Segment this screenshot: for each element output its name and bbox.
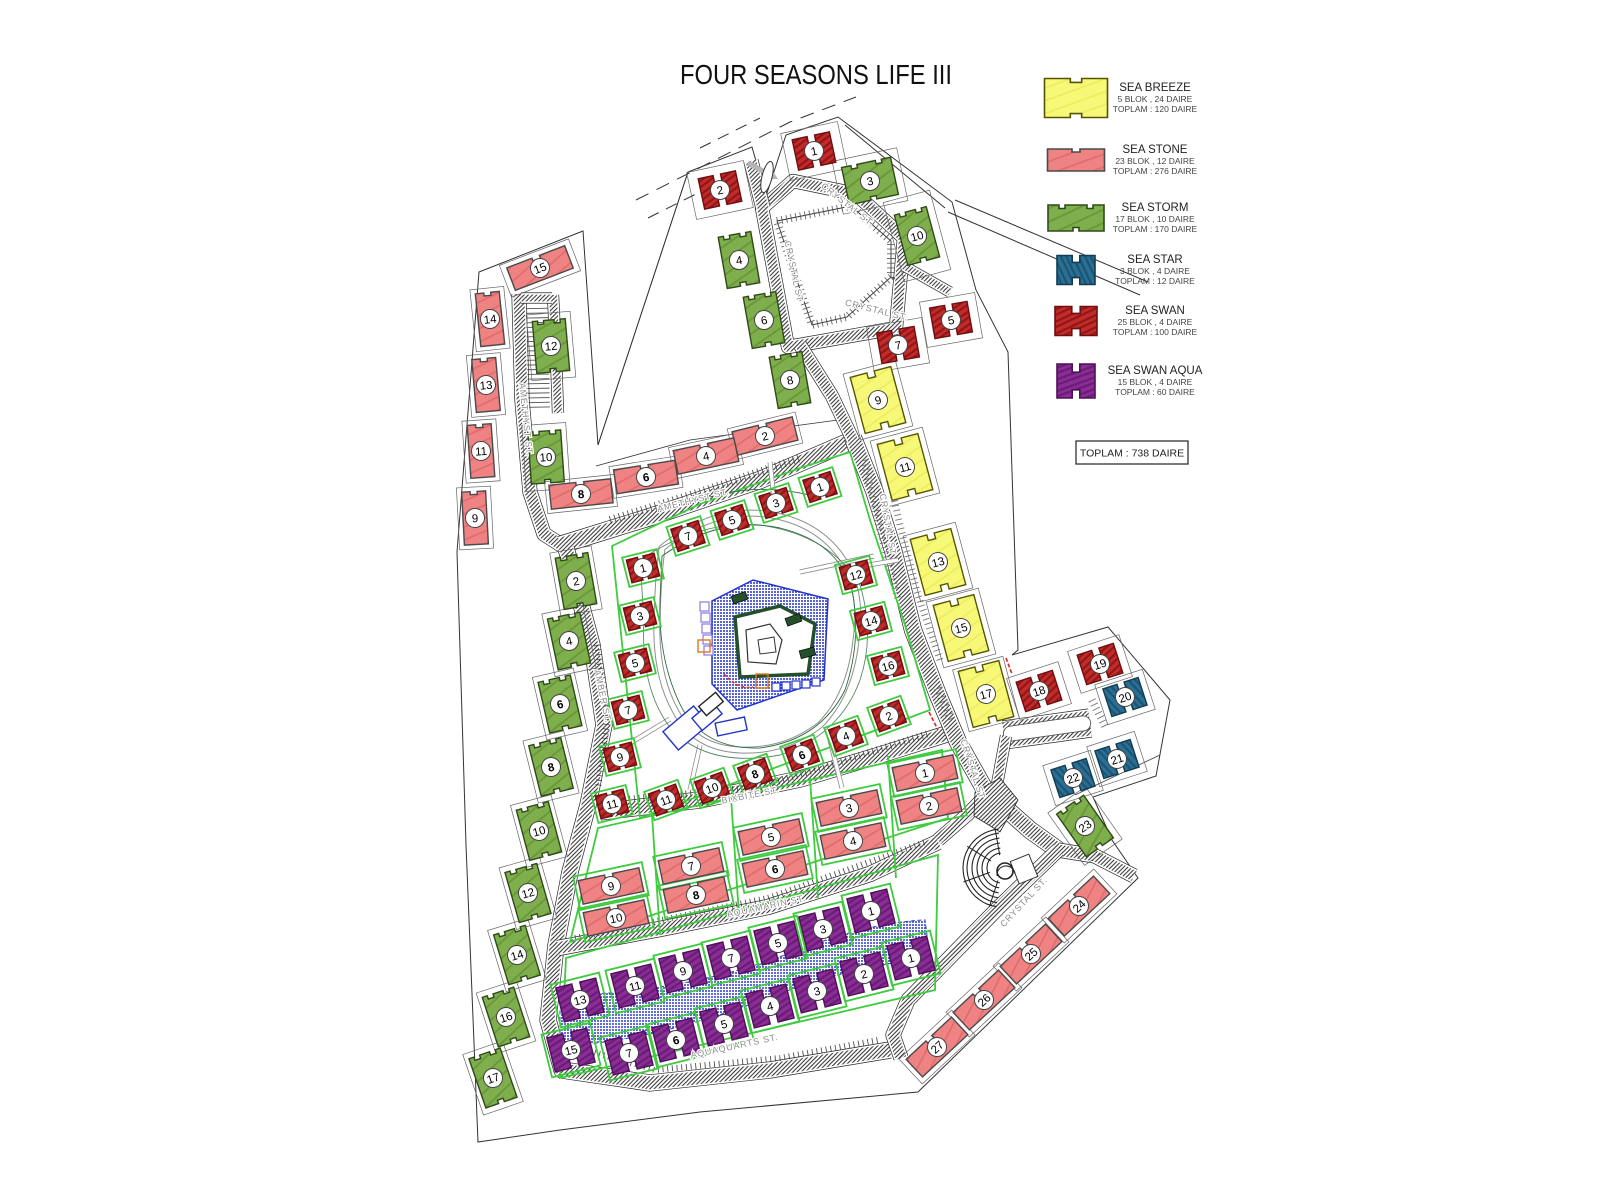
svg-text:15 BLOK , 4 DAIRE: 15 BLOK , 4 DAIRE (1118, 377, 1193, 387)
svg-text:3 BLOK , 4 DAIRE: 3 BLOK , 4 DAIRE (1120, 266, 1190, 276)
svg-text:11: 11 (475, 446, 488, 459)
svg-text:SEA STONE: SEA STONE (1123, 144, 1188, 156)
svg-text:SEA STAR: SEA STAR (1127, 254, 1182, 266)
svg-text:TOPLAM : 60 DAIRE: TOPLAM : 60 DAIRE (1115, 387, 1195, 397)
svg-text:23 BLOK , 12 DAIRE: 23 BLOK , 12 DAIRE (1115, 156, 1195, 166)
svg-text:TOPLAM : 12 DAIRE: TOPLAM : 12 DAIRE (1115, 276, 1195, 286)
svg-text:17 BLOK , 10 DAIRE: 17 BLOK , 10 DAIRE (1115, 214, 1195, 224)
svg-text:TOPLAM : 738 DAIRE: TOPLAM : 738 DAIRE (1080, 448, 1184, 460)
svg-text:TOPLAM : 276 DAIRE: TOPLAM : 276 DAIRE (1113, 166, 1198, 176)
svg-text:TOPLAM : 170 DAIRE: TOPLAM : 170 DAIRE (1113, 224, 1198, 234)
svg-text:SEA SWAN: SEA SWAN (1125, 305, 1185, 317)
svg-text:FOUR SEASONS LIFE III: FOUR SEASONS LIFE III (680, 59, 952, 90)
svg-text:SEA SWAN AQUA: SEA SWAN AQUA (1108, 365, 1203, 377)
svg-text:13: 13 (479, 380, 493, 393)
svg-text:25 BLOK , 4 DAIRE: 25 BLOK , 4 DAIRE (1118, 317, 1193, 327)
svg-text:9: 9 (472, 513, 479, 525)
svg-text:SEA BREEZE: SEA BREEZE (1119, 82, 1191, 94)
svg-text:SEA STORM: SEA STORM (1122, 202, 1189, 214)
svg-text:12: 12 (544, 341, 558, 354)
svg-text:10: 10 (539, 452, 553, 465)
svg-text:TOPLAM : 120 DAIRE: TOPLAM : 120 DAIRE (1113, 104, 1198, 114)
svg-text:14: 14 (483, 313, 498, 326)
svg-text:TOPLAM : 100 DAIRE: TOPLAM : 100 DAIRE (1113, 327, 1198, 337)
svg-text:5 BLOK , 24 DAIRE: 5 BLOK , 24 DAIRE (1118, 94, 1193, 104)
